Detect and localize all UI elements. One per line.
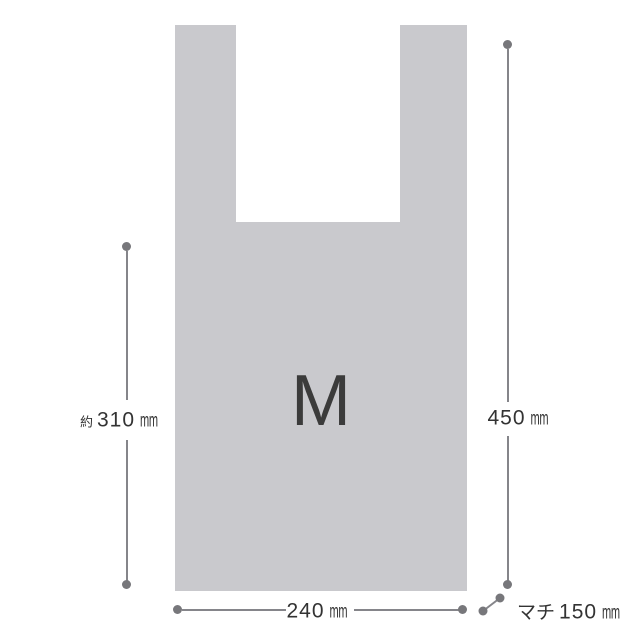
left-dim-line-lower [126,440,128,581]
bag-size-label: M [175,365,467,437]
left-dim-unit: mm [140,412,158,431]
gusset-dot-lower [479,607,488,616]
right-dim-bottom-dot [503,580,512,589]
gusset-dim-label: マチ 150 mm [517,602,626,623]
right-dim-unit: mm [531,410,549,429]
gusset-dim-value: 150 [559,602,597,623]
gusset-indicator [470,590,520,625]
bag-silhouette: M [175,25,467,591]
right-dim-label: 450 mm [487,408,554,429]
left-dim-top-dot [122,242,131,251]
right-dim-line-upper [507,49,509,402]
right-dim-top-dot [503,40,512,49]
bottom-dim-line-right [354,609,459,611]
left-dim-label: 約 310 mm [80,410,164,431]
gusset-dim-unit: mm [602,604,620,623]
bottom-dim-label: 240 mm [286,601,353,622]
left-dim-prefix: 約 [80,416,93,429]
right-dim-value: 450 [487,408,525,429]
gusset-dot-upper [496,594,505,603]
left-dim-line-upper [126,251,128,400]
bag-dimension-diagram: M 約 310 mm 450 mm 240 mm マチ 150 mm [0,0,640,640]
bottom-dim-right-dot [458,605,467,614]
left-dim-bottom-dot [122,580,131,589]
bottom-dim-value: 240 [286,601,324,622]
right-dim-line-lower [507,436,509,581]
bag-handle-notch [236,25,400,222]
bottom-dim-unit: mm [330,603,348,622]
gusset-dim-prefix: マチ [517,604,555,623]
bottom-dim-line-left [182,609,286,611]
left-dim-value: 310 [97,410,135,431]
bottom-dim-left-dot [173,605,182,614]
